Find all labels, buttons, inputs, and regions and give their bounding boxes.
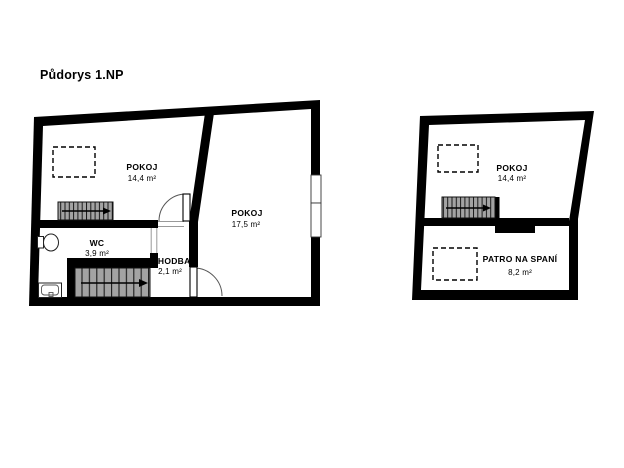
door-leaf <box>183 194 190 221</box>
floor-plan-main: POKOJ 14,4 m² POKOJ 17,5 m² WC 3,9 m² CH… <box>29 100 321 306</box>
toilet-icon <box>38 234 59 251</box>
stair-enclosure-wall-left <box>67 268 75 297</box>
room-label: PATRO NA SPANÍ <box>483 254 558 264</box>
room-label: POKOJ <box>231 208 262 218</box>
interior-wall-notch <box>495 218 535 233</box>
room-label: POKOJ <box>126 162 157 172</box>
room-area: 8,2 m² <box>508 268 532 277</box>
stair-enclosure-wall-top <box>67 258 158 268</box>
skylight-dashed-box <box>433 248 477 280</box>
floor-plan-loft: POKOJ 14,4 m² PATRO NA SPANÍ 8,2 m² <box>412 111 594 300</box>
skylight-dashed-box <box>438 145 478 172</box>
room-area: 14,4 m² <box>498 174 527 183</box>
window <box>311 203 321 237</box>
stair-side-wall <box>495 197 500 218</box>
room-area: 14,4 m² <box>128 174 157 183</box>
floorplan-drawing: POKOJ 14,4 m² POKOJ 17,5 m² WC 3,9 m² CH… <box>0 0 624 468</box>
skylight-dashed-box <box>53 147 95 177</box>
room-label: CHODBA <box>151 256 190 266</box>
room-label: WC <box>90 238 105 248</box>
room-area: 2,1 m² <box>158 267 182 276</box>
door-leaf <box>190 267 197 297</box>
room-label: POKOJ <box>496 163 527 173</box>
sink-icon <box>39 283 62 298</box>
window <box>311 175 321 203</box>
room-area: 3,9 m² <box>85 249 109 258</box>
room-area: 17,5 m² <box>232 220 261 229</box>
floorplan-canvas: Půdorys 1.NP <box>0 0 624 468</box>
interior-wall-horizontal <box>38 220 158 228</box>
